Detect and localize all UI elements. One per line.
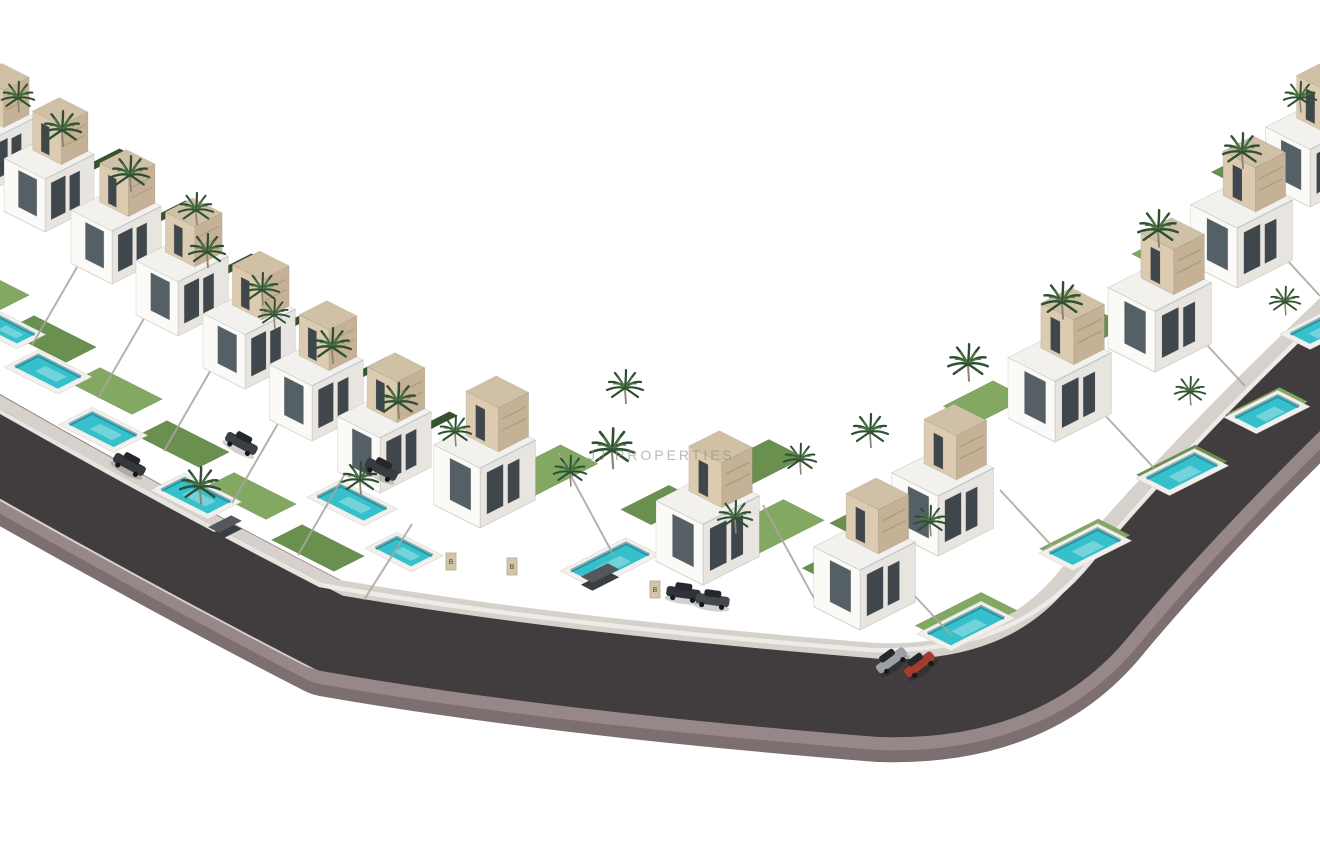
palm-tree-icon xyxy=(948,344,988,381)
fence xyxy=(1000,490,1052,546)
development-render: BBB xyxy=(0,0,1320,859)
villa xyxy=(1108,218,1211,372)
gate-post-label: B xyxy=(449,559,454,566)
palm-tree-icon xyxy=(607,370,643,404)
car xyxy=(220,426,262,461)
lawn xyxy=(137,421,230,468)
watermark: JJ PROPERTIES xyxy=(588,447,735,463)
villa xyxy=(1008,288,1111,442)
villa xyxy=(814,478,916,630)
gate-post: B xyxy=(507,558,517,575)
gate-post: B xyxy=(446,553,456,570)
palm-tree-icon xyxy=(1270,287,1301,316)
fence xyxy=(1102,412,1154,468)
lawn xyxy=(0,264,29,311)
palm-tree-icon xyxy=(1175,377,1206,406)
villa xyxy=(434,376,536,528)
gate-post: B xyxy=(650,581,660,598)
gate-post-label: B xyxy=(510,564,515,571)
palm-tree-icon xyxy=(852,414,888,448)
gate-post-label: B xyxy=(653,587,658,594)
property-render-image: BBB JJ PROPERTIES xyxy=(0,0,1320,859)
